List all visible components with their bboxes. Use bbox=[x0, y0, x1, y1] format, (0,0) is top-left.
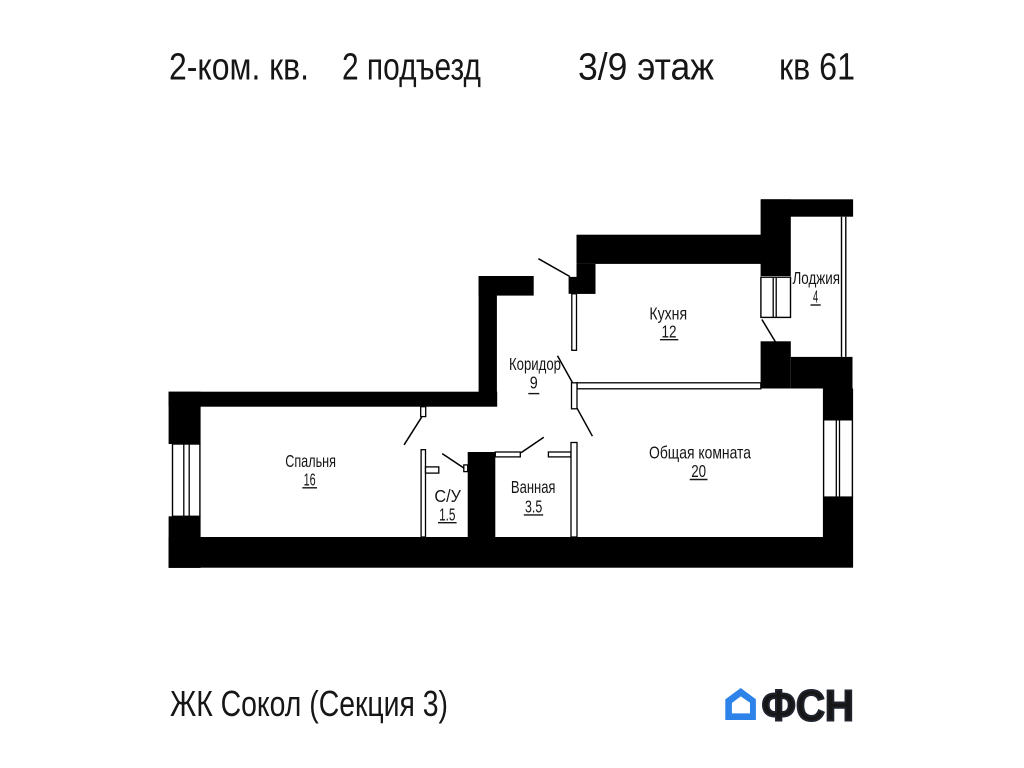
svg-text:4: 4 bbox=[813, 287, 818, 307]
svg-text:3/9 этаж: 3/9 этаж bbox=[578, 47, 715, 89]
svg-text:Ванная: Ванная bbox=[511, 477, 556, 497]
svg-text:20: 20 bbox=[691, 461, 706, 481]
svg-text:2 подъезд: 2 подъезд bbox=[342, 47, 481, 89]
svg-text:ЖК Сокол (Секция 3): ЖК Сокол (Секция 3) bbox=[170, 683, 448, 724]
svg-text:Кухня: Кухня bbox=[649, 304, 687, 324]
svg-text:3.5: 3.5 bbox=[525, 497, 542, 517]
svg-text:9: 9 bbox=[530, 373, 538, 393]
svg-text:12: 12 bbox=[662, 322, 677, 342]
svg-text:ФСН: ФСН bbox=[762, 681, 855, 730]
svg-text:2-ком. кв.: 2-ком. кв. bbox=[169, 47, 309, 89]
svg-text:С/У: С/У bbox=[434, 486, 461, 506]
svg-text:кв 61: кв 61 bbox=[779, 47, 855, 89]
svg-text:Коридор: Коридор bbox=[509, 354, 561, 374]
svg-text:16: 16 bbox=[304, 470, 316, 490]
svg-text:Лоджия: Лоджия bbox=[793, 268, 841, 288]
svg-text:Общая комната: Общая комната bbox=[649, 443, 751, 463]
svg-text:Спальня: Спальня bbox=[285, 451, 336, 471]
svg-text:1.5: 1.5 bbox=[439, 505, 455, 525]
